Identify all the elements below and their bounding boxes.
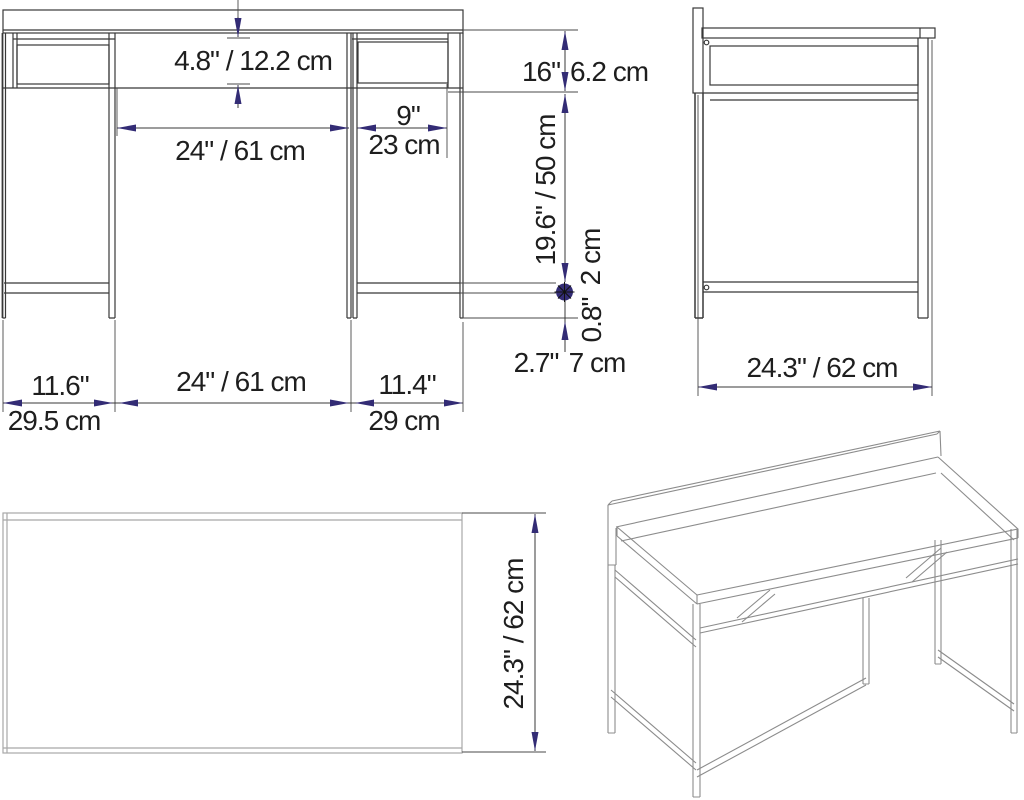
dim-label-left-width-in: 11.6": [31, 372, 88, 400]
dim-label-top-depth: 24.3" / 62 cm: [500, 558, 528, 709]
dim-label-top-height-cm: 6.2 cm: [570, 58, 648, 86]
side-view-linework: [693, 8, 935, 318]
dim-label-opening-width-bottom: 24" / 61 cm: [176, 368, 306, 396]
furniture-dimension-drawing: 4.8" / 12.2 cm 24" / 61 cm 9" 23 cm 16" …: [0, 0, 1024, 800]
top-view-linework: [3, 513, 462, 753]
dim-label-side-depth: 24.3" / 62 cm: [746, 354, 897, 382]
dim-label-foot-cm: 7 cm: [569, 349, 626, 377]
dim-label-side-shelf-cm: 23 cm: [368, 131, 439, 159]
dim-label-stretcher-in: 0.8": [578, 298, 606, 343]
dim-label-shelf-height: 4.8" / 12.2 cm: [174, 47, 332, 75]
dim-label-leg-clearance: 19.6" / 50 cm: [532, 114, 560, 265]
dim-label-foot-in: 2.7": [514, 349, 559, 377]
perspective-view-linework: [608, 431, 1018, 797]
screw-hole-icon: [704, 40, 709, 45]
dim-label-opening-width-top: 24" / 61 cm: [175, 137, 305, 165]
screw-hole-icon: [704, 285, 709, 290]
dim-label-left-width-cm: 29.5 cm: [8, 407, 101, 435]
dim-label-top-height-in: 16": [522, 58, 560, 86]
dim-label-right-width-cm: 29 cm: [368, 407, 439, 435]
small-dimension-dot-icon: [555, 282, 575, 302]
dim-label-side-shelf-in: 9": [396, 102, 420, 130]
dim-label-right-width-in: 11.4": [378, 371, 435, 399]
dimension-lines: [3, 17, 932, 751]
dim-label-stretcher-cm: 2 cm: [577, 229, 605, 286]
